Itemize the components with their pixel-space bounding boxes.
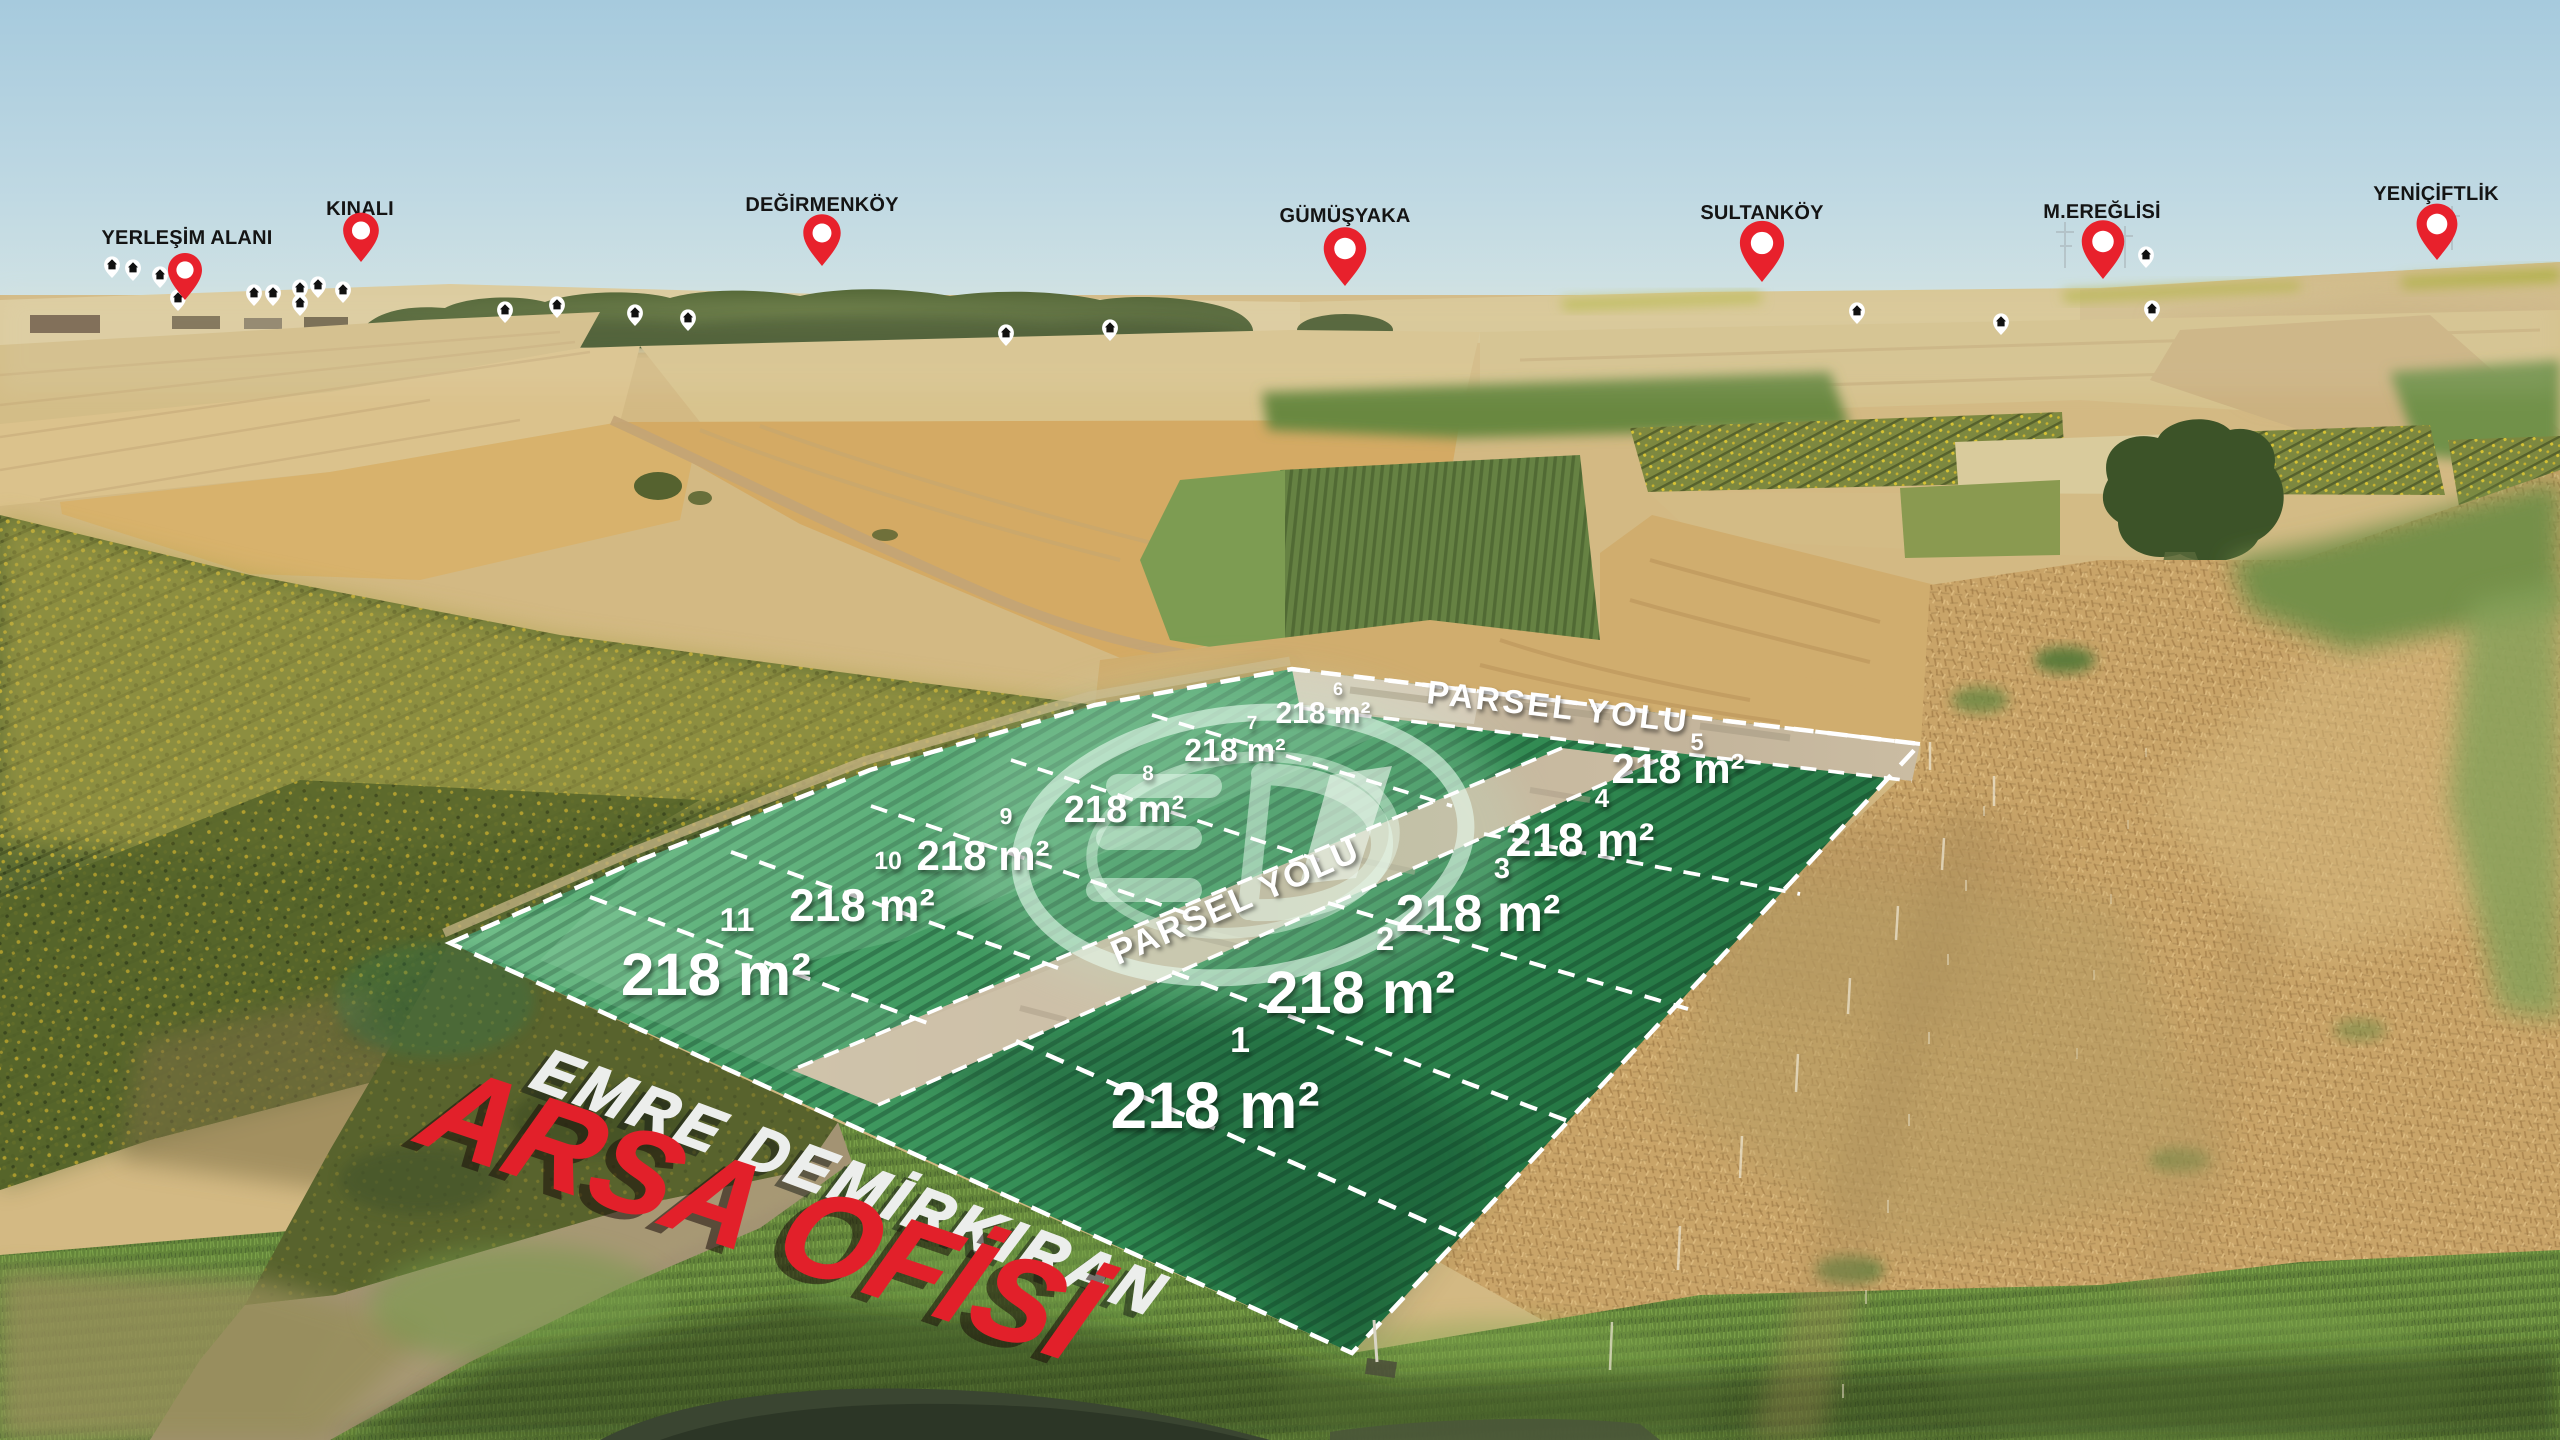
svg-text:10: 10 [874, 847, 902, 875]
svg-text:218 m²: 218 m² [1275, 697, 1370, 730]
svg-text:11: 11 [720, 901, 755, 938]
svg-text:218 m²: 218 m² [1110, 1068, 1319, 1142]
svg-text:DEĞİRMENKÖY: DEĞİRMENKÖY [745, 193, 899, 216]
svg-text:YENİÇİFTLİK: YENİÇİFTLİK [2373, 182, 2499, 205]
svg-text:218 m²: 218 m² [1506, 813, 1655, 866]
svg-text:8: 8 [1142, 762, 1154, 785]
svg-text:SULTANKÖY: SULTANKÖY [1700, 201, 1824, 224]
svg-text:218 m²: 218 m² [789, 879, 935, 931]
svg-text:M.EREĞLİSİ: M.EREĞLİSİ [2043, 200, 2161, 223]
svg-text:5: 5 [1690, 729, 1703, 756]
svg-text:218 m²: 218 m² [1396, 885, 1561, 943]
svg-text:GÜMÜŞYAKA: GÜMÜŞYAKA [1279, 204, 1410, 227]
svg-text:1: 1 [1230, 1019, 1250, 1060]
svg-text:4: 4 [1595, 783, 1610, 813]
svg-text:218 m²: 218 m² [916, 832, 1049, 879]
svg-text:YERLEŞİM ALANI: YERLEŞİM ALANI [102, 226, 273, 249]
svg-text:2: 2 [1376, 920, 1394, 957]
svg-text:218 m²: 218 m² [1184, 732, 1285, 768]
svg-text:6: 6 [1333, 679, 1343, 699]
svg-text:218 m²: 218 m² [621, 941, 811, 1008]
svg-text:7: 7 [1247, 713, 1258, 734]
svg-text:218 m²: 218 m² [1064, 789, 1184, 831]
svg-text:218 m²: 218 m² [1611, 745, 1744, 792]
svg-text:218 m²: 218 m² [1265, 959, 1455, 1026]
svg-text:9: 9 [1000, 803, 1013, 829]
